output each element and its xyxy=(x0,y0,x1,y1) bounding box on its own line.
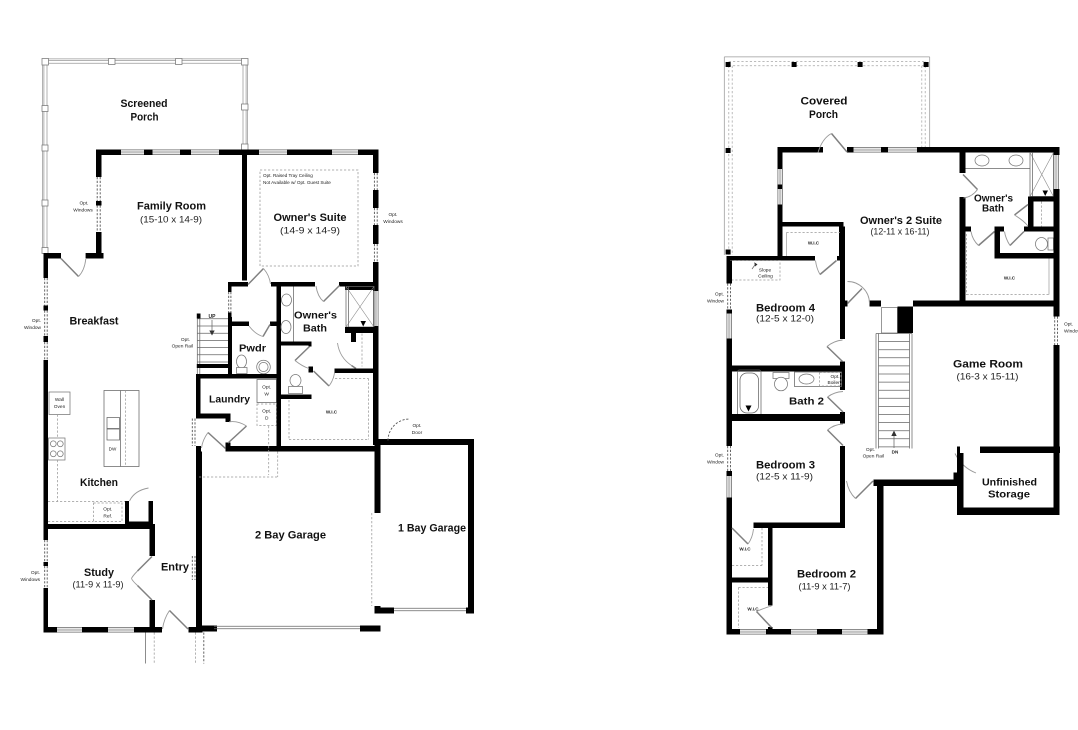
svg-text:D: D xyxy=(265,416,269,422)
svg-text:Opt.: Opt. xyxy=(181,337,190,343)
svg-text:Porch: Porch xyxy=(131,112,159,124)
svg-text:Opt.: Opt. xyxy=(79,201,88,207)
svg-text:Opt.: Opt. xyxy=(262,409,271,415)
svg-text:Boiler: Boiler xyxy=(828,380,841,386)
svg-text:Open Rail: Open Rail xyxy=(863,454,884,460)
svg-text:Opt.: Opt. xyxy=(412,423,421,429)
svg-text:Slope: Slope xyxy=(759,268,772,274)
svg-text:Covered: Covered xyxy=(801,96,848,108)
svg-text:Laundry: Laundry xyxy=(209,395,251,406)
svg-text:Opt.: Opt. xyxy=(388,212,397,218)
svg-text:Kitchen: Kitchen xyxy=(80,477,118,489)
svg-text:Windows: Windows xyxy=(1064,329,1078,335)
svg-text:Bedroom 3: Bedroom 3 xyxy=(756,460,815,472)
svg-text:Ref.: Ref. xyxy=(103,514,112,520)
svg-text:Opt.: Opt. xyxy=(715,453,724,459)
svg-text:Breakfast: Breakfast xyxy=(70,316,119,328)
svg-text:Windows: Windows xyxy=(73,208,93,214)
svg-text:(14-9 x 14-9): (14-9 x 14-9) xyxy=(280,226,340,236)
svg-text:Window: Window xyxy=(707,299,725,305)
svg-text:Windows: Windows xyxy=(383,219,403,225)
svg-text:Bedroom 2: Bedroom 2 xyxy=(797,569,856,581)
svg-text:Opt.: Opt. xyxy=(103,507,112,513)
svg-text:Opt.: Opt. xyxy=(1064,322,1073,328)
svg-text:Storage: Storage xyxy=(988,490,1031,501)
svg-text:(11-9 x 11-9): (11-9 x 11-9) xyxy=(73,580,124,590)
svg-text:Family Room: Family Room xyxy=(137,201,206,213)
svg-text:Game Room: Game Room xyxy=(953,359,1023,371)
svg-text:W.I.C: W.I.C xyxy=(326,410,338,415)
svg-text:UP: UP xyxy=(209,314,217,320)
svg-text:W: W xyxy=(264,392,269,398)
svg-text:Opt.: Opt. xyxy=(831,374,840,380)
svg-text:Ceiling: Ceiling xyxy=(758,274,773,280)
svg-text:DW: DW xyxy=(109,447,117,452)
svg-text:Opt.: Opt. xyxy=(31,570,40,576)
svg-text:Pwdr: Pwdr xyxy=(239,344,266,355)
svg-text:Open Rail: Open Rail xyxy=(172,344,193,350)
svg-text:DN: DN xyxy=(892,450,899,455)
svg-text:Study: Study xyxy=(84,567,115,579)
svg-text:W.I.C: W.I.C xyxy=(1004,276,1016,281)
svg-text:Unfinished: Unfinished xyxy=(982,478,1037,489)
svg-text:Owner's 2 Suite: Owner's 2 Suite xyxy=(860,215,942,227)
svg-text:Bath: Bath xyxy=(303,324,327,335)
svg-text:(11-9 x 11-7): (11-9 x 11-7) xyxy=(799,582,851,592)
svg-text:(15-10 x 14-9): (15-10 x 14-9) xyxy=(140,215,202,225)
svg-text:Opt.: Opt. xyxy=(32,318,41,324)
svg-text:Not Available w/ Opt. Guest Su: Not Available w/ Opt. Guest Suite xyxy=(263,180,331,185)
svg-text:Window: Window xyxy=(707,460,725,466)
svg-text:Owner's Suite: Owner's Suite xyxy=(274,212,347,224)
svg-text:(12-5 x 11-9): (12-5 x 11-9) xyxy=(756,472,813,482)
svg-text:Windows: Windows xyxy=(21,577,41,583)
svg-text:(12-5 x 12-0): (12-5 x 12-0) xyxy=(756,314,814,324)
svg-text:2 Bay Garage: 2 Bay Garage xyxy=(255,530,326,542)
svg-text:Window: Window xyxy=(24,325,42,331)
svg-text:(16-3 x 15-11): (16-3 x 15-11) xyxy=(957,372,1019,382)
svg-text:Oven: Oven xyxy=(54,404,66,410)
svg-text:Bath: Bath xyxy=(982,204,1004,215)
svg-text:Entry: Entry xyxy=(161,562,190,574)
svg-text:1 Bay Garage: 1 Bay Garage xyxy=(398,523,466,535)
svg-text:Owner's: Owner's xyxy=(294,311,338,322)
svg-text:Porch: Porch xyxy=(809,109,838,121)
svg-text:W.I.C: W.I.C xyxy=(747,607,759,612)
svg-text:W.I.C: W.I.C xyxy=(739,547,751,552)
svg-text:Door: Door xyxy=(412,430,423,436)
svg-text:Screened: Screened xyxy=(121,98,168,110)
svg-text:Opt.: Opt. xyxy=(866,447,875,453)
svg-text:(12-11 x 16-11): (12-11 x 16-11) xyxy=(871,227,930,237)
svg-text:Opt. Raised Tray Ceiling: Opt. Raised Tray Ceiling xyxy=(263,173,313,178)
svg-text:Wall: Wall xyxy=(55,397,64,403)
svg-text:W.I.C: W.I.C xyxy=(808,241,820,246)
svg-text:Opt.: Opt. xyxy=(715,292,724,298)
svg-text:Opt.: Opt. xyxy=(262,385,271,391)
svg-text:Bath 2: Bath 2 xyxy=(789,397,825,408)
